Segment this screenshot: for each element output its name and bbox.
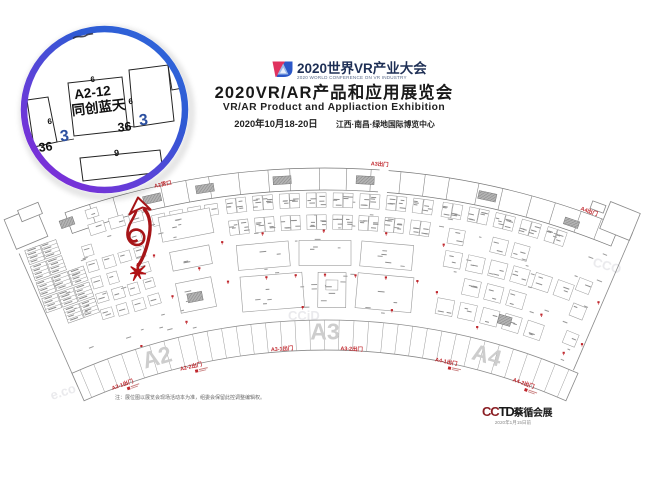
svg-text:江西·南昌·绿地国际博览中心: 江西·南昌·绿地国际博览中心	[336, 119, 435, 129]
svg-text:CCiD: CCiD	[288, 308, 320, 323]
svg-text:2020年1月15日前: 2020年1月15日前	[495, 419, 532, 426]
svg-text:2020年10月18-20日: 2020年10月18-20日	[234, 118, 317, 129]
svg-text:2020VR/AR产品和应用展览会: 2020VR/AR产品和应用展览会	[215, 82, 454, 102]
svg-text:2020世界VR产业大会: 2020世界VR产业大会	[297, 60, 427, 76]
svg-text:注：展位图以展览会现场活动本为准，组委会保留此控调整编辑权。: 注：展位图以展览会现场活动本为准，组委会保留此控调整编辑权。	[115, 394, 265, 401]
svg-text:VR/AR Product and Appliaction: VR/AR Product and Appliaction Exhibition	[223, 102, 445, 113]
svg-text:2020 WORLD CONFERENCE ON VR IN: 2020 WORLD CONFERENCE ON VR INDUSTRY	[297, 75, 407, 80]
svg-text:36: 36	[117, 119, 133, 135]
